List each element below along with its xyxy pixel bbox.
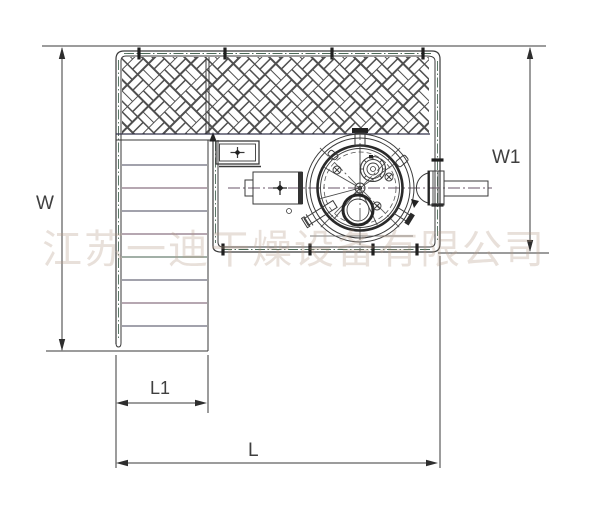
dimension-w1: W1 bbox=[492, 47, 533, 252]
dimension-arrow-down bbox=[527, 240, 533, 252]
grating-panel bbox=[122, 57, 429, 134]
manhole bbox=[343, 195, 373, 225]
dimension-l1: L1 bbox=[116, 378, 207, 406]
small-bolt bbox=[287, 209, 292, 214]
technical-drawing: W W1 L1 L bbox=[0, 0, 613, 505]
dimension-arrow-left bbox=[116, 400, 128, 406]
dimension-arrow-down bbox=[59, 339, 65, 351]
dimension-arrow-right bbox=[426, 460, 438, 466]
dimension-l: L bbox=[116, 440, 438, 466]
dimension-label-l1: L1 bbox=[150, 378, 170, 398]
drive-shaft bbox=[444, 181, 488, 196]
vessel bbox=[216, 128, 492, 252]
dimension-arrow-up bbox=[59, 47, 65, 59]
dimension-label-w1: W1 bbox=[492, 147, 521, 168]
dimension-arrow-up bbox=[527, 47, 533, 59]
dimension-arrow-left bbox=[116, 460, 128, 466]
drive-unit bbox=[411, 171, 444, 208]
dimension-label-w: W bbox=[36, 193, 54, 214]
stairs bbox=[122, 140, 208, 351]
agitator-spokes bbox=[320, 147, 393, 225]
technical-drawing-canvas: W W1 L1 L bbox=[0, 0, 613, 505]
dimension-arrow-right bbox=[195, 400, 207, 406]
dimension-w: W bbox=[36, 47, 65, 351]
grating-hatch bbox=[116, 57, 430, 140]
railing-end-hook bbox=[116, 341, 121, 347]
control-box bbox=[216, 141, 261, 167]
dimension-label-l: L bbox=[248, 440, 259, 461]
